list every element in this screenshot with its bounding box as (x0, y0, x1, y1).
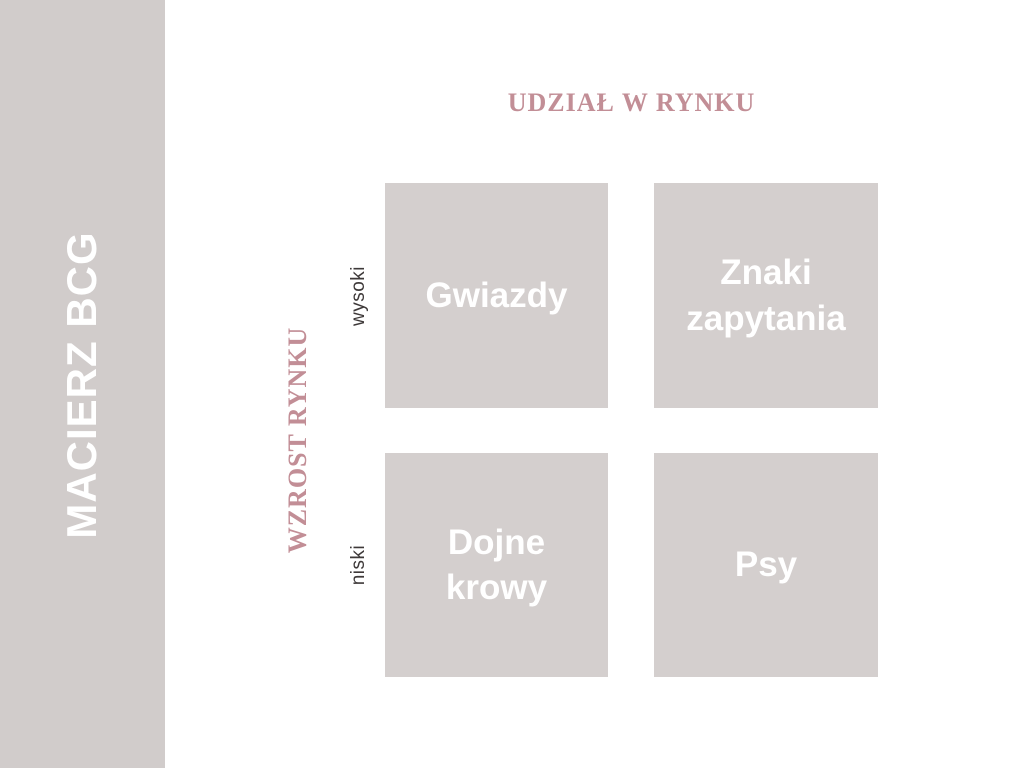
quadrant-question-marks-label: Znaki zapytania (664, 250, 868, 341)
bcg-matrix-slide: MACIERZ BCG UDZIAŁ W RYNKU WZROST RYNKU … (0, 0, 1024, 768)
quadrant-cash-cows-label: Dojne krowy (395, 520, 598, 611)
sidebar: MACIERZ BCG (0, 0, 165, 768)
y-tick-high: wysoki (348, 266, 370, 326)
slide-title: MACIERZ BCG (58, 231, 106, 538)
quadrant-question-marks: Znaki zapytania (654, 183, 878, 408)
y-axis-title: WZROST RYNKU (283, 327, 313, 554)
quadrant-dogs-label: Psy (735, 542, 797, 588)
quadrant-stars: Gwiazdy (385, 183, 608, 408)
quadrant-cash-cows: Dojne krowy (385, 453, 608, 677)
y-tick-low: niski (348, 545, 370, 586)
quadrant-dogs: Psy (654, 453, 878, 677)
x-axis-title: UDZIAŁ W RYNKU (385, 88, 878, 118)
quadrant-stars-label: Gwiazdy (426, 273, 568, 319)
